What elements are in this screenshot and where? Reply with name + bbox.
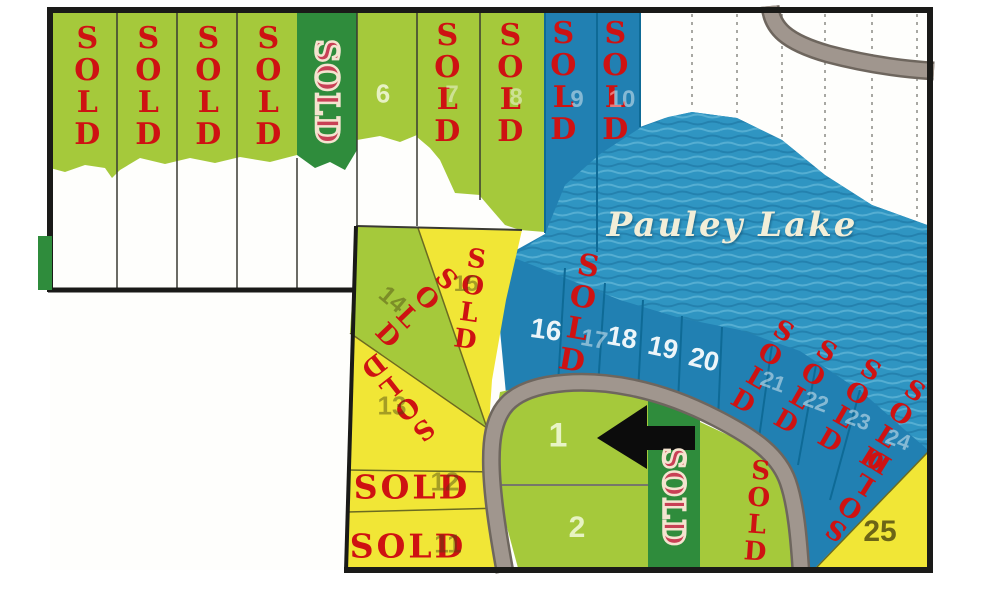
lots-1-4-green-shape bbox=[50, 10, 297, 178]
lot-8-shape bbox=[480, 10, 545, 232]
plat-map-drawing bbox=[0, 0, 984, 590]
plat-map: SOLD SOLD SOLD SOLD SOLD SOLD SOLD SOLD … bbox=[0, 0, 984, 590]
darkgreen-strip-shape bbox=[648, 398, 700, 568]
left-edge-green-strip bbox=[38, 236, 52, 290]
lot-2-shape bbox=[498, 486, 651, 568]
lot-5-darkgreen-shape bbox=[297, 10, 357, 170]
lot-6-shape bbox=[357, 10, 417, 142]
